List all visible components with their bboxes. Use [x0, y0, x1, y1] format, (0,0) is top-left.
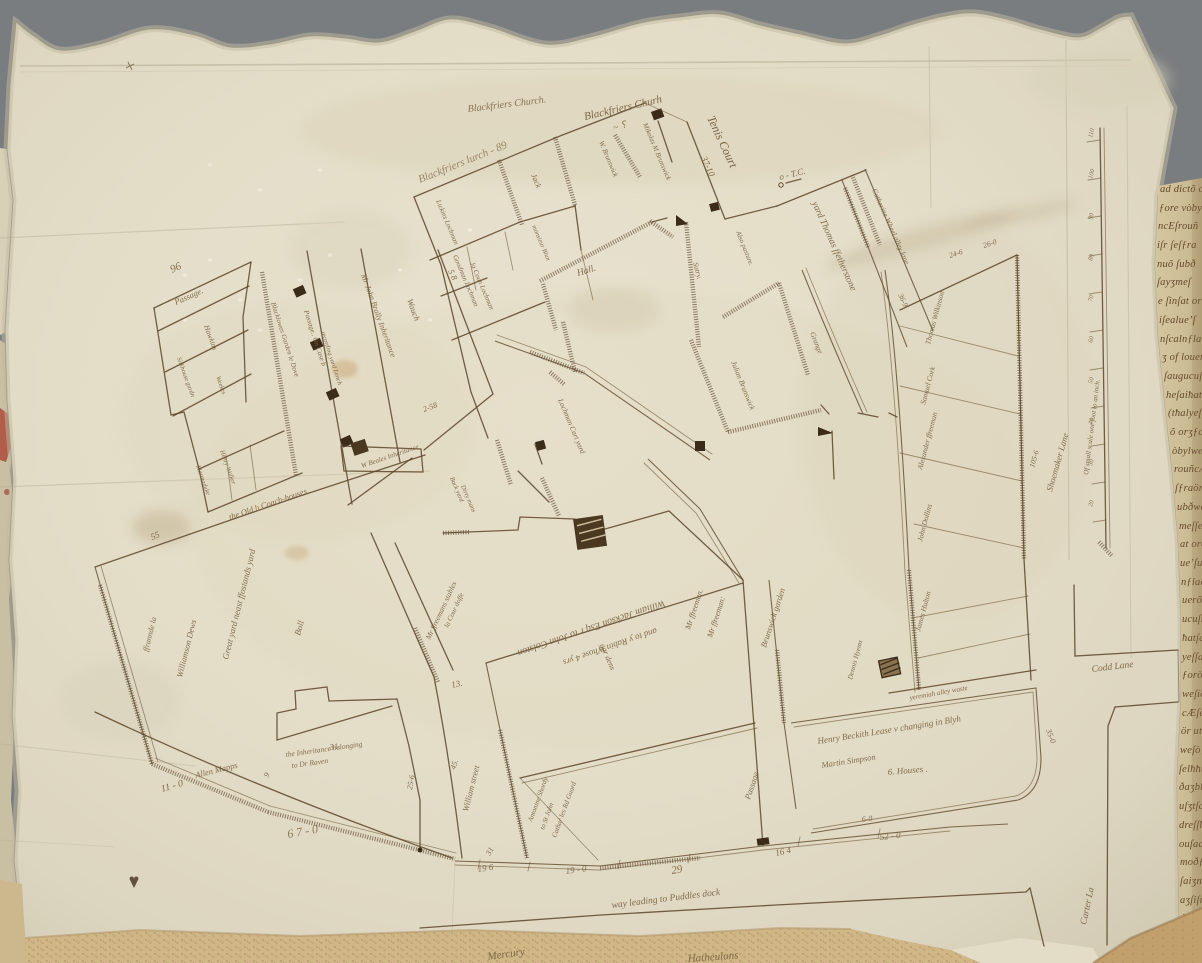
svg-text:ſayʒmeſ: ſayʒmeſ [1157, 277, 1193, 288]
svg-text:iſr ſeſƒra: iſr ſeſƒra [1157, 240, 1197, 251]
svg-text:6-0: 6-0 [861, 814, 873, 824]
svg-text:31.: 31. [328, 741, 341, 753]
svg-text:iſealue’ſ: iſealue’ſ [1159, 315, 1198, 326]
svg-text:nuõ ſubð: nuõ ſubð [1157, 259, 1196, 270]
